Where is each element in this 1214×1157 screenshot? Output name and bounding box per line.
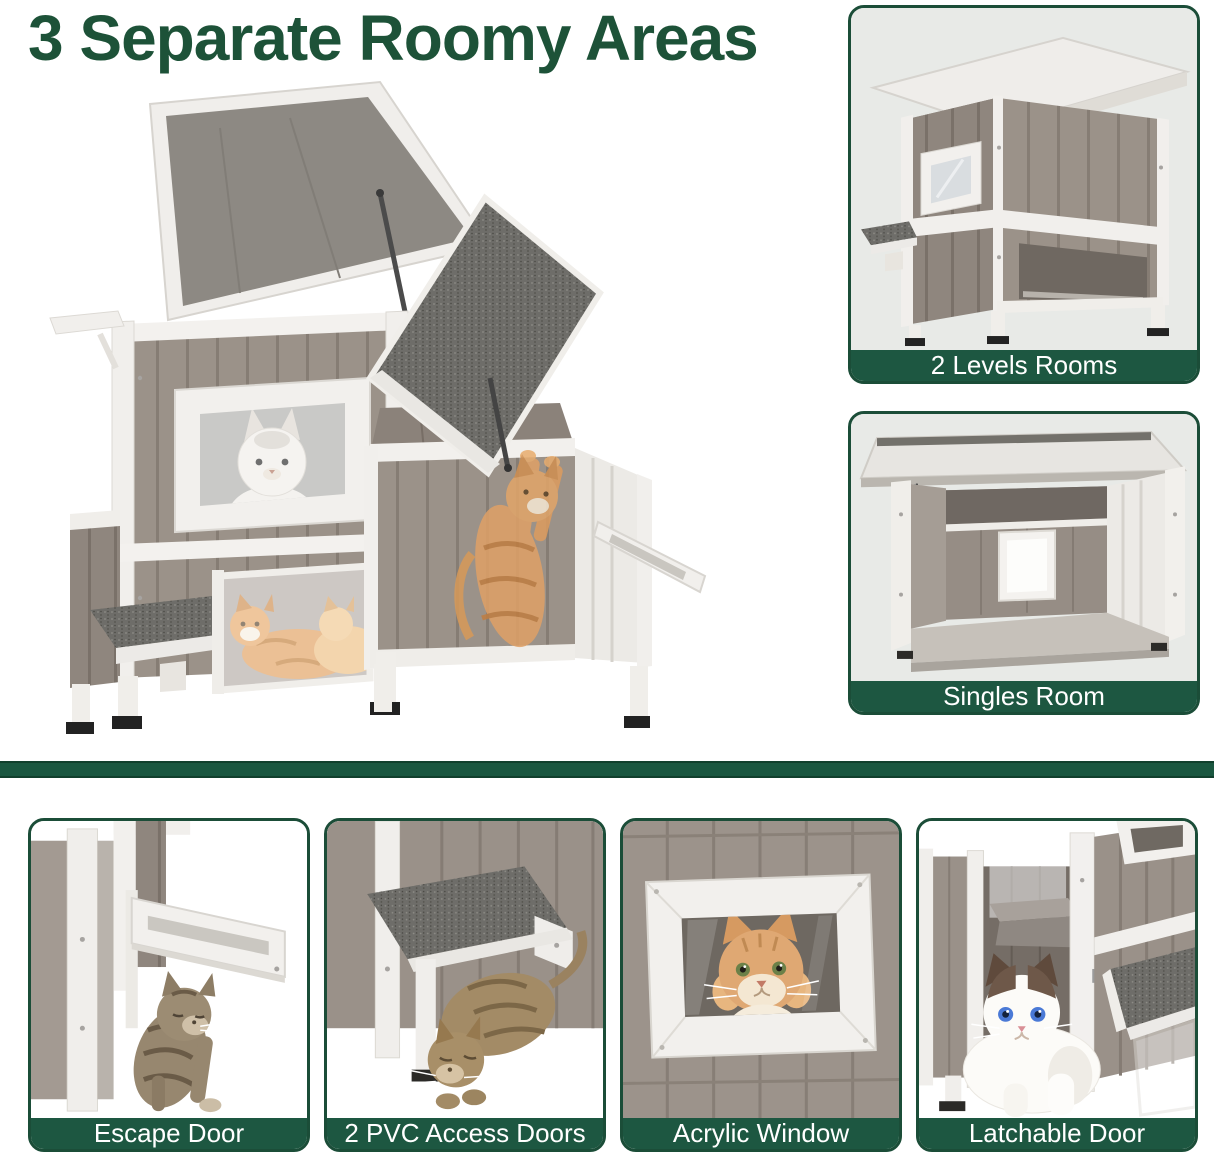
card-singles-room: Singles Room	[848, 411, 1200, 715]
card-label-acrylic-window: Acrylic Window	[623, 1118, 899, 1149]
card-acrylic-window: Acrylic Window	[620, 818, 902, 1152]
two-level-house-image	[851, 8, 1197, 350]
card-label-pvc-access-doors: 2 PVC Access Doors	[327, 1118, 603, 1149]
page-title: 3 Separate Roomy Areas	[28, 0, 758, 76]
pvc-access-doors-image	[327, 821, 603, 1118]
two-level-house-illustration	[851, 8, 1197, 350]
acrylic-window-image	[623, 821, 899, 1118]
card-label-escape-door: Escape Door	[31, 1118, 307, 1149]
card-2-levels-rooms: 2 Levels Rooms	[848, 5, 1200, 384]
main-product-image	[40, 78, 830, 743]
card-label-2-levels-rooms: 2 Levels Rooms	[851, 350, 1197, 381]
pvc-access-doors-illustration	[327, 821, 603, 1118]
card-escape-door: Escape Door	[28, 818, 310, 1152]
gray-door-flap	[990, 898, 1079, 947]
card-latchable-door: Latchable Door	[916, 818, 1198, 1152]
escape-door-image	[31, 821, 307, 1118]
latchable-door-illustration	[919, 821, 1195, 1118]
singles-room-image	[851, 414, 1197, 681]
inner-flap-door	[999, 530, 1055, 600]
card-label-singles-room: Singles Room	[851, 681, 1197, 712]
escape-door-illustration	[31, 821, 307, 1118]
card-label-latchable-door: Latchable Door	[919, 1118, 1195, 1149]
singles-room-illustration	[851, 414, 1197, 681]
card-pvc-access-doors: 2 PVC Access Doors	[324, 818, 606, 1152]
section-divider	[0, 761, 1214, 778]
latchable-door-image	[919, 821, 1195, 1118]
acrylic-door-with-cats	[212, 566, 382, 694]
cat-house-illustration	[40, 78, 830, 743]
acrylic-window-frame	[646, 874, 876, 1057]
acrylic-window-illustration	[623, 821, 899, 1118]
